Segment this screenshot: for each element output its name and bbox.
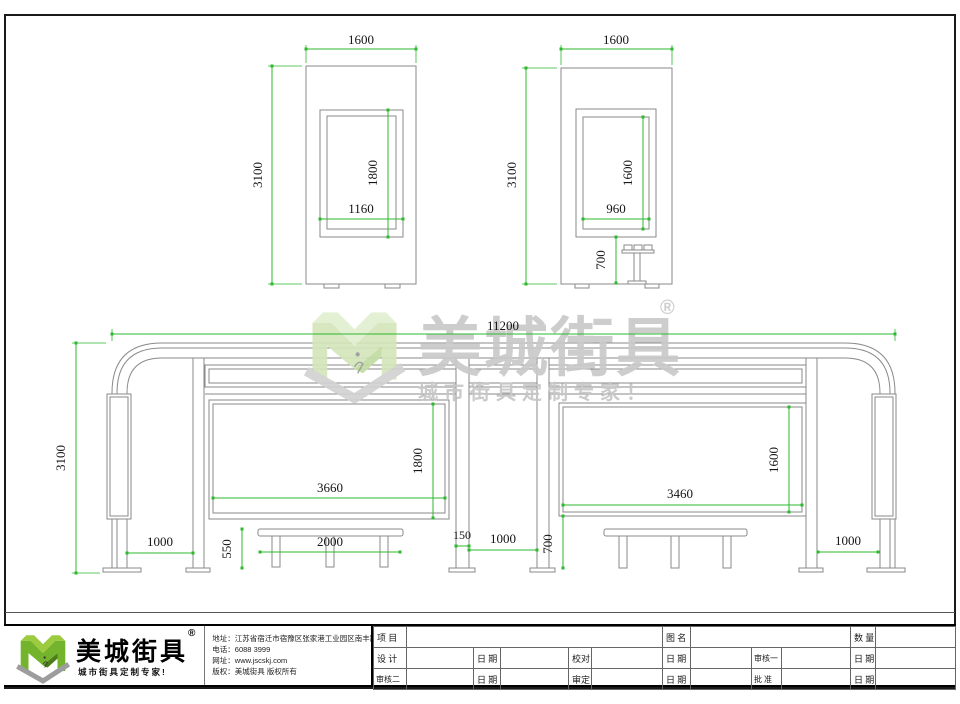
company-name: 美城街具: [76, 632, 188, 668]
dim-side-a-height: 3100: [250, 66, 302, 284]
date-value-cell[interactable]: [500, 648, 568, 669]
drawing-info-table: 项 目 图 名 数 量 设 计 日 期 校对 日 期 审核一: [371, 626, 956, 685]
brand-cube-icon: [14, 629, 72, 685]
label-drawing-name: 图 名: [662, 627, 690, 648]
label-proofread: 校对: [568, 648, 591, 669]
dim-side-b-height: 3100: [504, 68, 557, 284]
dim-left-panel-height: 1800: [410, 404, 433, 518]
bench-right: [604, 529, 747, 568]
label-date: 日 期: [851, 669, 876, 690]
contact-address: 地址：江苏省宿迁市宿豫区张家港工业园区南丰路西侧1号: [212, 633, 369, 644]
label-quantity: 数 量: [851, 627, 876, 648]
dim-bench-length: 2000: [260, 534, 400, 552]
dim-right-panel-width: 3460: [563, 486, 802, 505]
watermark-tagline: 城市街具定制专家！: [418, 380, 652, 404]
dim-left-end-bay: 1000: [127, 534, 193, 553]
company-logo: 美城街具 ® 城市街具定制专家!: [4, 626, 204, 685]
svg-text:3660: 3660: [317, 480, 343, 495]
proofread-value-cell[interactable]: [591, 648, 662, 669]
svg-text:150: 150: [453, 528, 471, 542]
watermark: 美城街具 ® 城市街具定制专家！: [306, 297, 682, 404]
svg-text:3100: 3100: [504, 162, 519, 188]
date-value-cell[interactable]: [690, 669, 751, 690]
dim-left-panel-width: 3660: [213, 480, 445, 498]
svg-text:3460: 3460: [667, 486, 693, 501]
label-authorize: 批 准: [751, 669, 781, 690]
date-value-cell[interactable]: [876, 648, 956, 669]
dim-front-height: 3100: [53, 343, 106, 573]
svg-text:11200: 11200: [487, 318, 519, 333]
svg-text:550: 550: [219, 539, 234, 559]
company-contact: 地址：江苏省宿迁市宿豫区张家港工业园区南丰路西侧1号 电话：6088 3999 …: [204, 626, 371, 685]
dim-side-b-seat-height: 700: [593, 237, 616, 283]
label-project: 项 目: [373, 627, 406, 648]
title-block: 美城街具 ® 城市街具定制专家! 地址：江苏省宿迁市宿豫区张家港工业园区南丰路西…: [4, 624, 956, 687]
reviewer-1-value-cell[interactable]: [781, 648, 850, 669]
label-design: 设 计: [373, 648, 406, 669]
cad-sheet: 美城街具 ® 城市街具定制专家！ 1600 3100 1800: [0, 0, 960, 704]
bus-shelter-drawing: 美城街具 ® 城市街具定制专家！ 1600 3100 1800: [0, 0, 960, 622]
registered-mark: ®: [188, 628, 195, 639]
svg-text:2000: 2000: [317, 534, 343, 549]
svg-text:1600: 1600: [603, 32, 629, 47]
svg-text:3100: 3100: [53, 445, 68, 471]
dimensions: 1600 3100 1800 1160 1600: [53, 32, 895, 573]
svg-text:1600: 1600: [348, 32, 374, 47]
svg-text:1160: 1160: [348, 201, 374, 216]
label-reviewer-1: 审核一: [751, 648, 781, 669]
label-date: 日 期: [662, 669, 690, 690]
table-row: 设 计 日 期 校对 日 期 审核一 日 期: [373, 648, 955, 669]
quantity-value-cell[interactable]: [876, 627, 956, 648]
date-value-cell[interactable]: [500, 669, 568, 690]
date-value-cell[interactable]: [690, 648, 751, 669]
contact-website: 网址：www.jscskj.com: [212, 655, 369, 666]
dim-side-a-screen-width: 1160: [320, 201, 403, 219]
design-value-cell[interactable]: [406, 648, 473, 669]
watermark-brand: 美城街具: [418, 312, 682, 384]
drawing-name-value-cell[interactable]: [690, 627, 850, 648]
svg-text:960: 960: [606, 201, 626, 216]
svg-text:700: 700: [540, 534, 555, 554]
approve-check-value-cell[interactable]: [591, 669, 662, 690]
company-tagline: 城市街具定制专家!: [78, 666, 167, 678]
svg-text:1000: 1000: [490, 531, 516, 546]
svg-text:700: 700: [593, 250, 608, 270]
svg-text:1800: 1800: [365, 160, 380, 186]
reviewer-2-value-cell[interactable]: [406, 669, 473, 690]
svg-text:3100: 3100: [250, 162, 265, 188]
table-row: 项 目 图 名 数 量: [373, 627, 955, 648]
svg-text:1800: 1800: [410, 448, 425, 474]
svg-text:1600: 1600: [766, 447, 781, 473]
dim-side-a-screen-height: 1800: [365, 110, 388, 237]
project-value-cell[interactable]: [406, 627, 662, 648]
svg-text:1600: 1600: [620, 160, 635, 186]
contact-phone: 电话：6088 3999: [212, 644, 369, 655]
label-date: 日 期: [662, 648, 690, 669]
brand-cube-watermark-icon: [306, 312, 403, 398]
label-date: 日 期: [473, 648, 500, 669]
table-row: 审核二 日 期 审定 日 期 批 准 日 期: [373, 669, 955, 690]
label-date: 日 期: [851, 648, 876, 669]
seat-profile: [622, 245, 654, 284]
dim-side-b-screen-width: 960: [583, 201, 649, 219]
dim-right-panel-height: 1600: [766, 407, 789, 512]
side-view-a: [306, 66, 416, 288]
label-approve-check: 审定: [568, 669, 591, 690]
date-value-cell[interactable]: [876, 669, 956, 690]
label-date: 日 期: [473, 669, 500, 690]
dim-side-a-width: 1600: [306, 32, 416, 63]
label-reviewer-2: 审核二: [373, 669, 406, 690]
dim-right-end-bay: 1000: [818, 533, 878, 552]
svg-text:1000: 1000: [147, 534, 173, 549]
svg-text:1000: 1000: [835, 533, 861, 548]
authorize-value-cell[interactable]: [781, 669, 850, 690]
dim-center-bay: 1000: [469, 531, 537, 550]
contact-copyright: 版权：美城街具 版权所有: [212, 666, 369, 677]
dim-bench-height: 550: [219, 529, 242, 568]
dim-side-b-width: 1600: [561, 32, 672, 65]
watermark-registered: ®: [660, 297, 675, 319]
